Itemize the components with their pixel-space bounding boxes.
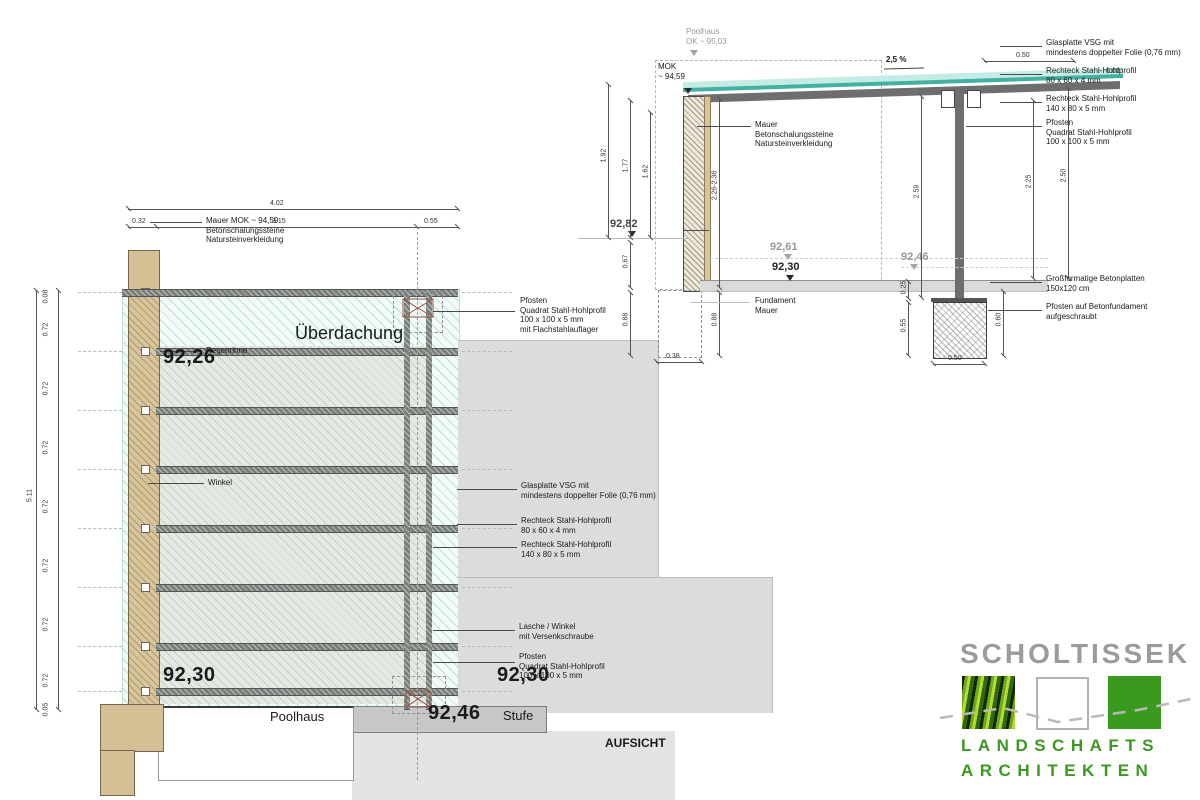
callout-pfosten-section: Pfosten Quadrat Stahl-Hohlprofil 100 x 1… [1046,118,1132,147]
dim-segment: 0.72 [43,544,50,588]
winkel-clip [141,465,150,474]
post-head-plate-left [941,90,955,108]
dim-250-line [1068,88,1069,279]
dim-025-line [908,281,909,299]
callout-mauer-section: Mauer Betonschalungssteine Natursteinver… [755,120,833,149]
poolhaus-outline [158,706,354,781]
dim-088-wall: 0.88 [712,298,719,342]
dim-w1: 0.32 [132,218,146,225]
dim-055: 0.55 [901,304,908,348]
poolhaus-label: Poolhaus [270,709,324,724]
callout-rechteck-140-plan: Rechteck Stahl-Hohlprofil 140 x 80 x 5 m… [521,540,611,559]
canopy-label: Überdachung [295,323,403,344]
logo-line2: ARCHITEKTEN [961,761,1154,781]
dim-177: 1.77 [623,144,630,188]
axis-dash-left [78,410,122,411]
dim-050-found-line [933,364,985,365]
level-92-61-line [710,258,1048,259]
leader-fundament [690,302,750,303]
post-head-plate-right [967,90,981,108]
axis-dash-left [78,528,122,529]
dim-overhang: 0.50 [1016,52,1030,59]
dim-wall-range: 2.26-2.36 [712,164,719,208]
axis-dash-right [462,691,512,692]
wall-plan-step-a [100,704,164,752]
wall-plan-step-b [100,750,135,796]
dim-total-width-line [128,209,458,210]
dim-162-line [650,112,651,238]
logo-dashed-line-icon [938,688,1200,732]
dim-segment-line [58,290,59,710]
axis-dash-left [78,587,122,588]
dim-038: 0.38 [666,353,680,360]
steel-bar [156,525,458,533]
dim-259: 2.59 [914,170,921,214]
axis-dash-right [462,646,512,647]
axis-dash-right [462,292,512,293]
callout-rechteck-140-section: Rechteck Stahl-Hohlprofil 140 x 80 x 5 m… [1046,94,1136,113]
winkel-clip [141,347,150,356]
dim-192: 1.92 [601,134,608,178]
slope-label: 2,5 % [886,55,906,65]
leader-lasche [433,630,515,631]
callout-rechteck-80-plan: Rechteck Stahl-Hohlprofil 80 x 60 x 4 mm [521,516,611,535]
dim-088-left-line [630,292,631,356]
post-section [955,88,964,302]
callout-winkel: Winkel [208,478,232,488]
dim-259-line [921,96,922,298]
winkel-clip [141,642,150,651]
axis-dash-right [462,528,512,529]
post-line-right [426,289,432,710]
dim-w3: 0.55 [424,218,438,225]
axis-dash-right [462,351,512,352]
dim-177-line [630,100,631,238]
callout-rechteck-80-section: Rechteck Stahl-Hohlprofil 80 x 60 x 4 mm [1046,66,1136,85]
callout-glasplatte-plan: Glasplatte VSG mit mindestens doppelter … [521,481,656,500]
dim-segment: 0.72 [43,367,50,411]
level-92-61: 92,61 [770,241,798,253]
poolhaus-ok-label: Poolhaus OK ~ 95,03 [686,27,727,46]
steel-bar-top-left-ext [122,289,156,297]
axis-dash-right [462,587,512,588]
leader-pfosten-fundament [988,310,1042,311]
leader-mauer [150,222,202,223]
dim-055-line [908,302,909,356]
level-92-82: 92,82 [610,218,638,230]
leader-pfosten-bottom [433,662,515,663]
leader-sec-glas [1000,46,1042,47]
leader-sec-r80 [1000,74,1042,75]
mok-label: MOK ~ 94,59 [658,62,685,81]
leader-rechteck140 [433,547,517,548]
level-92-30-right: 92,30 [497,664,550,687]
callout-mauer-plan: Mauer MOK ~ 94,59 Betonschalungssteine N… [206,216,284,245]
steel-bar [156,466,458,474]
dim-segment: 0.05 [43,688,50,732]
callout-pfosten-fundament: Pfosten auf Betonfundament aufgeschraubt [1046,302,1147,321]
callout-lasche: Lasche / Winkel mit Versenkschraube [519,622,594,641]
logo-name: SCHOLTISSEK [960,638,1190,670]
plan-title: AUFSICHT [605,736,666,750]
axis-dash-left [78,691,122,692]
callout-glasplatte-section: Glasplatte VSG mit mindestens doppelter … [1046,38,1181,57]
dim-088-left: 0.88 [623,298,630,342]
level-marker-icon [784,254,792,260]
post-line-left [404,289,410,710]
leader-winkel [148,483,204,484]
callout-betonplatten: Großformatige Betonplatten 150x120 cm [1046,274,1145,293]
dim-060: 0.60 [996,298,1003,342]
leader-betonplatten2 [990,282,1042,283]
dim-250: 2.50 [1061,154,1068,198]
level-marker-icon [786,275,794,281]
dim-segment: 0.72 [43,308,50,352]
callout-pfosten-top: Pfosten Quadrat Stahl-Hohlprofil 100 x 1… [520,296,606,334]
terrace-area-lower [458,577,773,713]
winkel-clip [141,406,150,415]
winkel-clip [141,583,150,592]
axis-dash-right [462,469,512,470]
wall-block-joint [683,230,709,231]
dim-050-found: 0.50 [948,355,962,362]
dim-225: 2.25 [1026,160,1033,204]
leader-sec-pfosten [966,126,1042,127]
dim-sub-width-line [128,227,458,228]
level-92-26: 92,26 [163,346,216,369]
level-92-46: 92,46 [901,251,929,263]
post-top-x-icon [402,298,434,318]
steel-bar [156,407,458,415]
axis-dash-left [78,646,122,647]
post-foundation [933,302,987,359]
level-92-46-line [901,267,1048,268]
logo-line1: LANDSCHAFTS [961,736,1160,756]
level-92-30: 92,30 [772,261,800,273]
leader-sec-mauer [697,126,751,127]
axis-dash-left [78,469,122,470]
leader-sec-r140 [1000,102,1042,103]
level-92-46: 92,46 [428,702,481,725]
wall-foundation-dashed [658,290,702,358]
level-92-30-left: 92,30 [163,664,216,687]
dim-segment: 0.72 [43,485,50,529]
dim-total-height-line [36,290,37,710]
callout-fundament: Fundament Mauer [755,296,795,315]
dim-067-line [630,242,631,288]
leader-rechteck80 [457,524,517,525]
axis-dash-left [78,351,122,352]
leader-glasplatte [457,489,517,490]
axis-dash-left [78,292,122,293]
winkel-clip [141,524,150,533]
dim-total-height: 5.11 [27,474,34,518]
dim-192-line [608,84,609,238]
drawing-sheet: 4.02 0.32 3.15 0.55 5.11 0.080.720.720.7… [0,0,1200,800]
dim-162: 1.62 [643,150,650,194]
axis-dash-right [462,410,512,411]
leader-pfosten-top [433,311,515,312]
wall-plan-top [128,250,160,292]
dim-overhang-line [984,61,1074,62]
dim-segment: 0.72 [43,426,50,470]
level-marker-icon [684,88,692,94]
steel-bar [156,584,458,592]
dim-060-line [1003,291,1004,356]
winkel-clip [141,687,150,696]
steel-bar [156,643,458,651]
dim-total-width: 4.02 [270,200,284,207]
dim-038-line [656,362,702,363]
dim-067: 0.67 [623,240,630,284]
dim-segment: 0.72 [43,603,50,647]
stufe-label: Stufe [503,708,533,723]
